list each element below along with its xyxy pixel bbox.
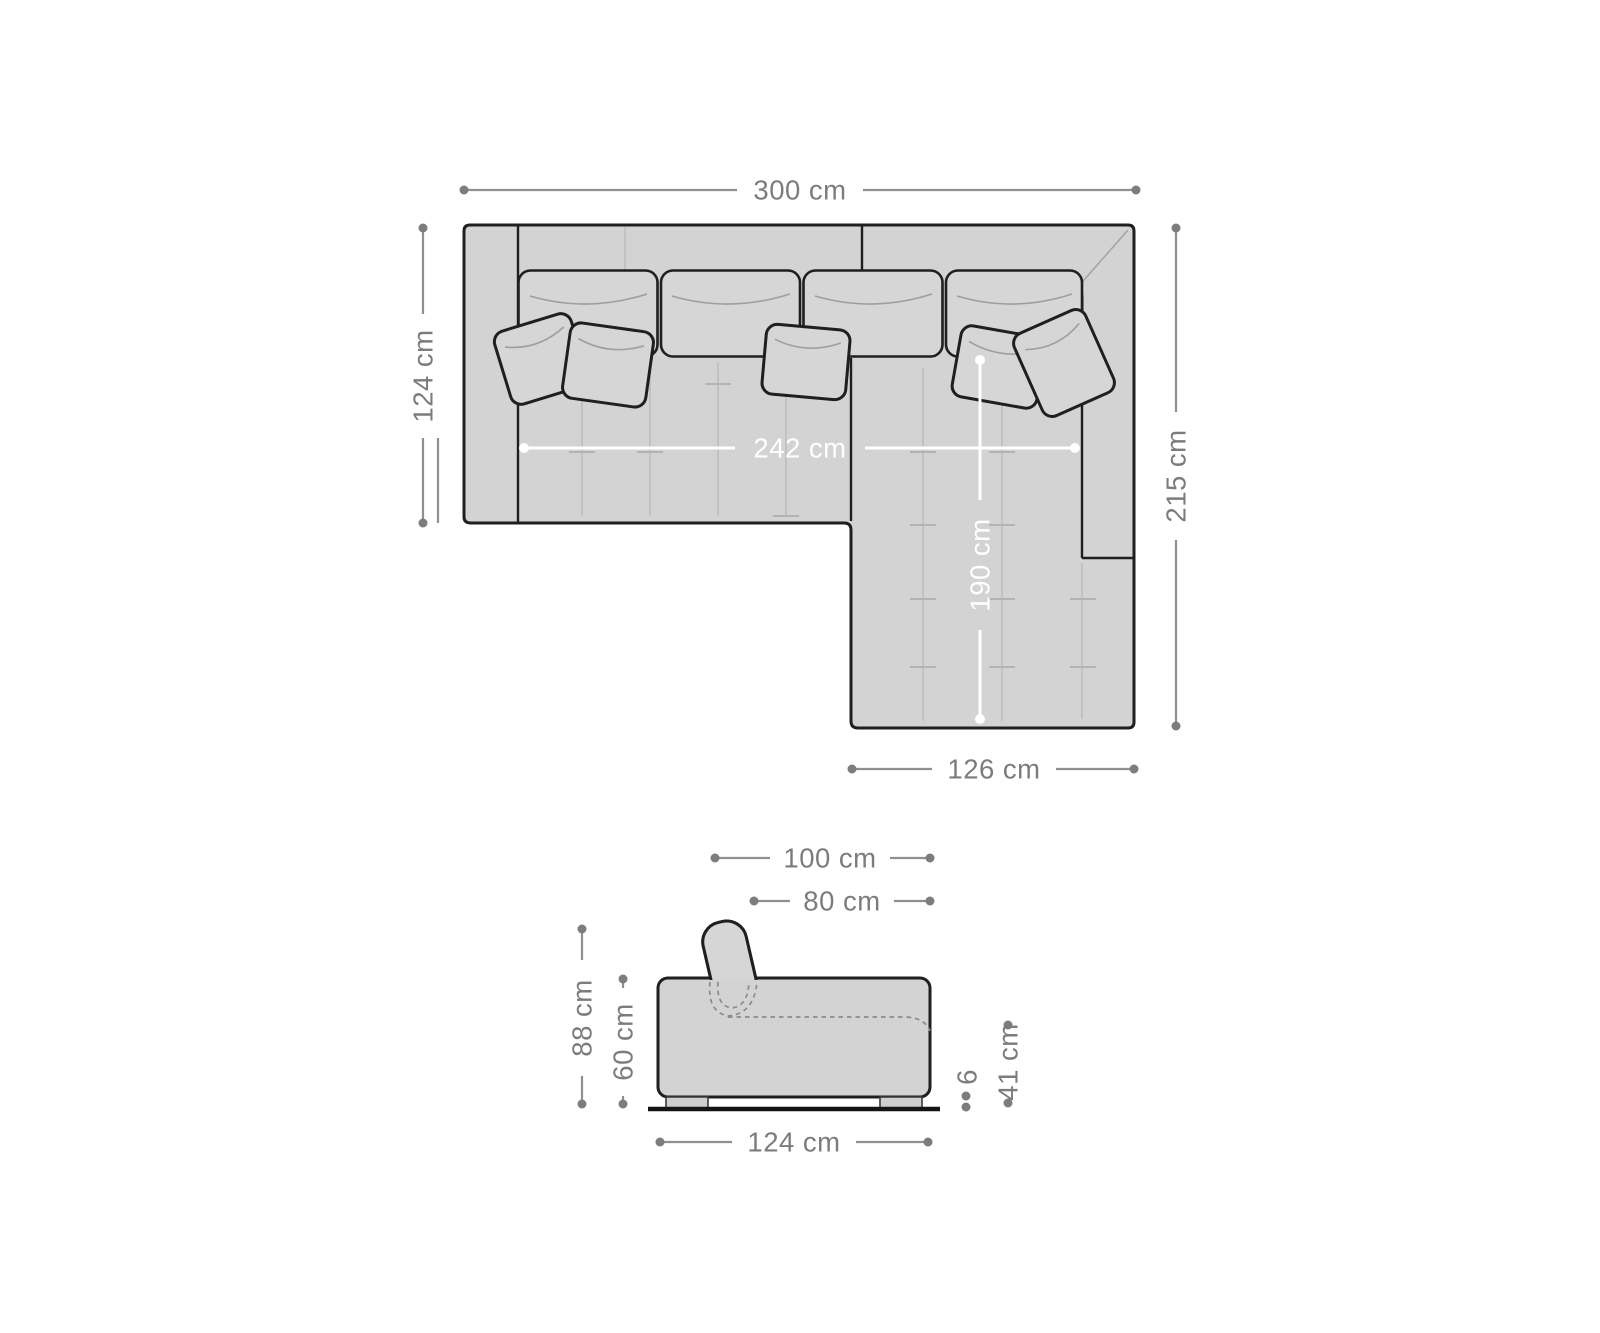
dim-label-left-depth: 124 cm [408,329,439,422]
dim-label-chaise-inner-length: 190 cm [965,518,996,611]
side-view-sofa-body [658,978,930,1097]
throw-pillow [561,322,655,409]
dim-label-seat-depth: 80 cm [803,886,880,917]
dim-label-base-depth: 124 cm [747,1127,840,1158]
dim-overall-depth: 215 cm [1161,224,1192,731]
dim-label-overall-width: 300 cm [753,175,846,206]
throw-pillow [761,323,851,400]
dim-seat-height: 41 cm [993,1021,1024,1108]
dim-label-seat-height: 41 cm [993,1023,1024,1100]
dim-label-overall-depth: 215 cm [1161,429,1192,522]
dim-foot-height: 6 [952,1069,983,1111]
dim-seat-depth: 80 cm [750,886,935,917]
dim-label-total-height: 88 cm [567,979,598,1056]
dim-depth-with-back-cushion: 100 cm [711,843,935,874]
dim-label-foot-height: 6 [952,1069,983,1085]
dim-label-body-height: 60 cm [608,1003,639,1080]
diagram-page: 300 cm 124 cm 215 cm 242 cm [0,0,1600,1333]
dim-label-depth-with-back-cushion: 100 cm [783,843,876,874]
side-view: 100 cm 80 cm 88 cm 60 cm [567,843,1024,1158]
top-view: 300 cm 124 cm 215 cm 242 cm [408,175,1192,785]
sofa-dimension-diagram: 300 cm 124 cm 215 cm 242 cm [0,0,1600,1333]
dim-label-inner-seat-width: 242 cm [753,433,846,464]
dim-total-height: 88 cm [567,925,598,1109]
dim-overall-width: 300 cm [460,175,1141,206]
dim-label-chaise-width: 126 cm [947,754,1040,785]
dim-base-depth: 124 cm [656,1127,933,1158]
dim-body-height: 60 cm [608,975,639,1109]
dim-chaise-width: 126 cm [848,754,1139,785]
dim-left-depth: 124 cm [408,224,439,528]
